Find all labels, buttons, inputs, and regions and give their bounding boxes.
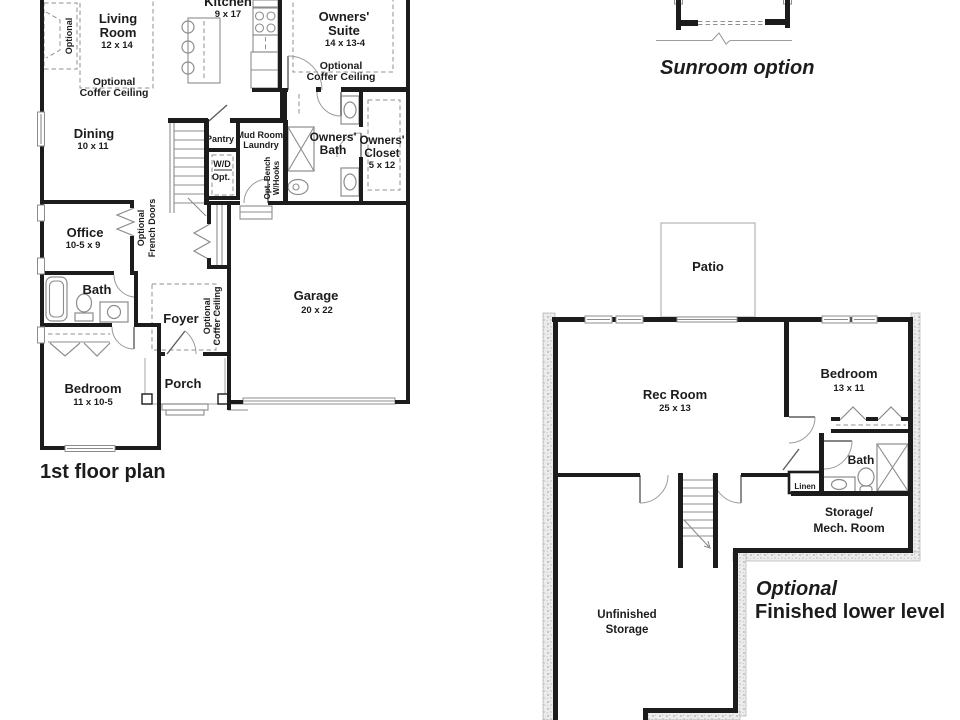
- note-coffer-foyer-1: Optional: [202, 298, 212, 335]
- room-label-lower-bath: Bath: [848, 453, 875, 467]
- note-fireplace: Optional: [64, 18, 74, 55]
- room-label-bedroom: Bedroom: [64, 381, 121, 396]
- room-label-owners-bath-1: Owners': [310, 130, 357, 144]
- room-label-lower-bedroom: Bedroom: [820, 366, 877, 381]
- note-french-1: Optional: [136, 210, 146, 247]
- lower-level-plan: Patio Rec Room 25 x 13 Bedroom 13 x 11 B…: [543, 223, 945, 720]
- room-dims-bedroom: 11 x 10-5: [73, 397, 113, 408]
- note-bench-2: W/Hooks: [272, 160, 281, 195]
- floor-plan-svg: Kitchen 9 x 17 Living Room 12 x 14 Optio…: [0, 0, 960, 720]
- note-french-2: French Doors: [147, 199, 157, 258]
- room-label-porch: Porch: [165, 376, 202, 391]
- room-dims-office: 10-5 x 9: [66, 240, 101, 251]
- room-label-office: Office: [67, 225, 104, 240]
- garage-step: [240, 206, 272, 219]
- room-label-storage-2: Mech. Room: [813, 521, 884, 535]
- room-label-dining: Dining: [74, 126, 114, 141]
- room-label-suite-1: Owners': [319, 9, 370, 24]
- french-doors: [117, 208, 134, 236]
- note-coffer-foyer-2: Coffer Ceiling: [212, 286, 222, 345]
- note-bench-1: Opt. Bench: [263, 157, 272, 200]
- room-label-owners-closet-1: Owners': [360, 135, 405, 147]
- note-coffer-suite-2: Coffer Ceiling: [307, 71, 376, 83]
- lower-level-title-2: Finished lower level: [755, 601, 945, 623]
- room-label-foyer: Foyer: [163, 311, 198, 326]
- room-label-unfinished-2: Storage: [606, 624, 649, 636]
- room-label-rec: Rec Room: [643, 387, 707, 402]
- room-dims-rec: 25 x 13: [659, 403, 691, 414]
- lower-level-title-1: Optional: [756, 578, 838, 600]
- sunroom-title: Sunroom option: [660, 57, 814, 79]
- room-dims-kitchen: 9 x 17: [215, 9, 241, 20]
- first-floor-title: 1st floor plan: [40, 461, 166, 483]
- room-dims-living: 12 x 14: [101, 40, 133, 51]
- note-coffer-living-2: Coffer Ceiling: [80, 87, 149, 99]
- lower-level-windows: [585, 316, 877, 323]
- bedroom-closet: [48, 334, 110, 356]
- room-label-living-1: Living: [99, 11, 137, 26]
- room-label-suite-2: Suite: [328, 23, 360, 38]
- lower-bath-fixtures: [823, 444, 908, 493]
- first-floor-plan: Kitchen 9 x 17 Living Room 12 x 14 Optio…: [38, 0, 411, 483]
- room-dims-lower-bedroom: 13 x 11: [833, 383, 865, 394]
- room-label-kitchen: Kitchen: [204, 0, 252, 9]
- room-label-owners-closet-2: Closet: [364, 148, 399, 160]
- pantry-door: [209, 105, 227, 121]
- room-label-living-2: Room: [100, 25, 137, 40]
- room-label-wd-1: W/D: [213, 159, 231, 169]
- room-label-storage-1: Storage/: [825, 505, 874, 519]
- room-label-mudroom-2: Laundry: [243, 140, 279, 150]
- room-dims-suite: 14 x 13-4: [325, 38, 366, 49]
- floor-plan-image: Kitchen 9 x 17 Living Room 12 x 14 Optio…: [0, 0, 960, 720]
- room-label-wd-2: Opt.: [212, 172, 230, 182]
- room-label-owners-bath-2: Bath: [320, 143, 347, 157]
- room-label-patio: Patio: [692, 259, 724, 274]
- room-dims-dining: 10 x 11: [77, 141, 109, 152]
- room-label-garage: Garage: [294, 288, 339, 303]
- staircase-first-floor: [170, 123, 206, 216]
- room-label-mudroom-1: Mud Room/: [237, 130, 286, 140]
- garage-door: [243, 398, 395, 404]
- room-dims-owners-closet: 5 x 12: [369, 160, 395, 171]
- staircase-lower: [683, 480, 713, 548]
- kitchen-appliances: [251, 0, 278, 88]
- room-label-linen: Linen: [794, 482, 815, 491]
- room-dims-garage: 20 x 22: [301, 305, 333, 316]
- sunroom-option: Sunroom option: [656, 0, 814, 79]
- kitchen-island: [182, 18, 220, 83]
- room-label-pantry: Pantry: [206, 134, 234, 144]
- lower-bedroom-closet: [836, 407, 906, 425]
- room-label-unfinished-1: Unfinished: [597, 609, 656, 621]
- room-label-bath: Bath: [83, 282, 112, 297]
